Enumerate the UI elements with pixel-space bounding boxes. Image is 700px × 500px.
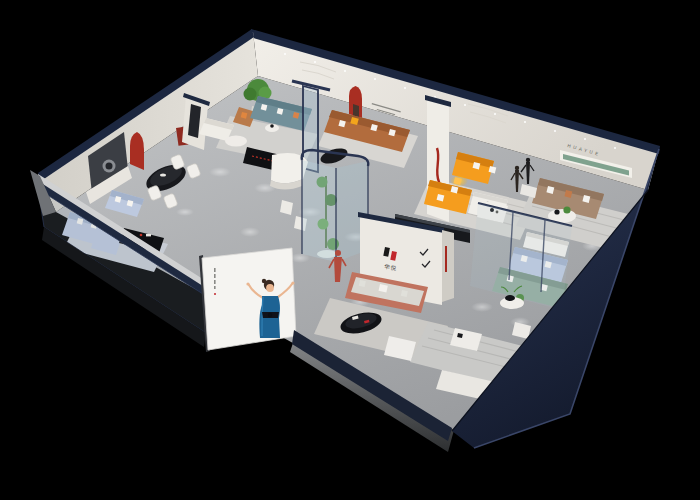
billboard	[199, 248, 296, 352]
red-arch-niche-left	[130, 132, 144, 170]
red-accent-strip	[445, 246, 447, 272]
coffee-table-white	[225, 136, 247, 147]
wall-return-face	[442, 230, 454, 302]
red-arch-niche-right	[349, 86, 362, 118]
isometric-floorplan-svg: HUAYUE	[0, 0, 700, 500]
showroom-render: HUAYUE	[0, 0, 700, 500]
table-dish	[160, 173, 166, 176]
glass-face-left	[302, 160, 336, 262]
